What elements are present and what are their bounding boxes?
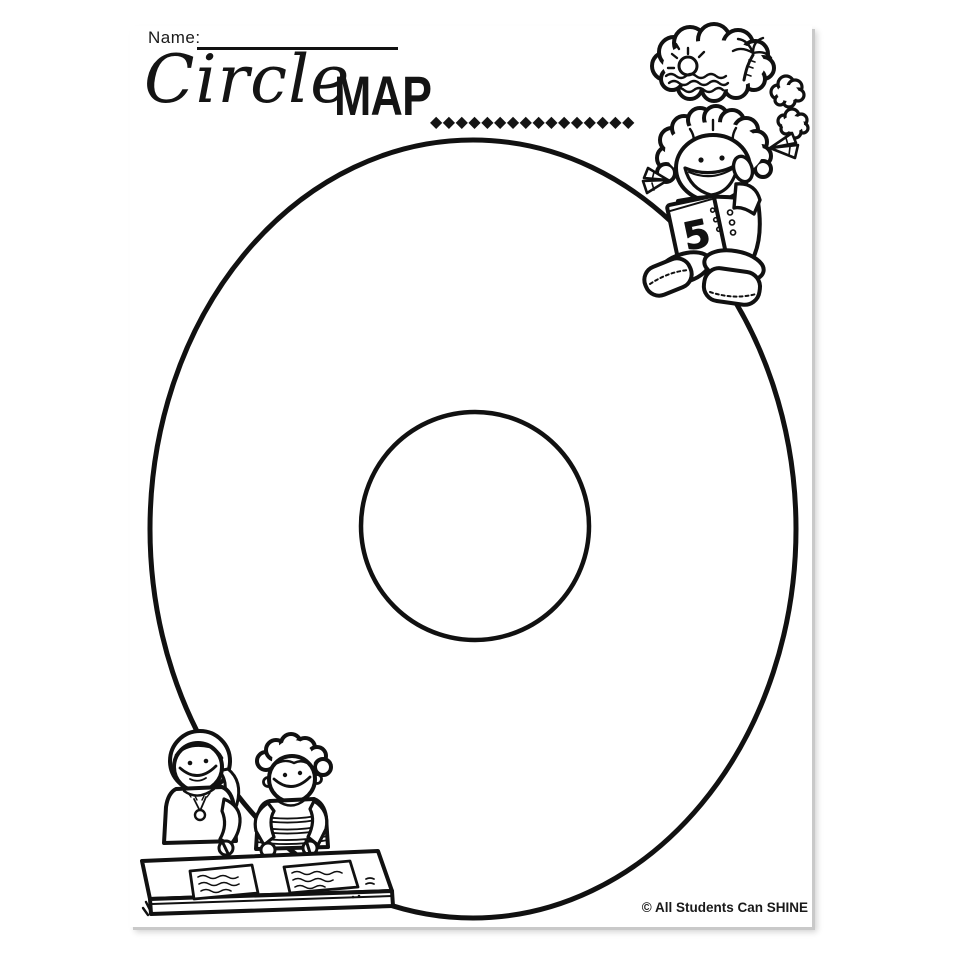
girl-eye-left xyxy=(698,157,703,162)
desk xyxy=(142,851,393,915)
girl-student xyxy=(164,731,240,871)
paper-boy xyxy=(284,861,358,893)
girl-figure: 5 xyxy=(640,106,798,307)
necklace-pendant xyxy=(195,810,205,820)
shoe-right xyxy=(702,266,762,306)
legs-and-shoes xyxy=(640,246,766,307)
paper-girl xyxy=(190,865,258,899)
shoe-left xyxy=(640,254,696,300)
kids-writing-clipart xyxy=(138,721,398,928)
inner-circle xyxy=(361,412,589,640)
worksheet-page: Name: Circle MAP ◆◆◆◆◆◆◆◆◆◆◆◆◆◆◆◆ xyxy=(130,26,812,927)
boy-student xyxy=(255,734,331,871)
thought-bubble-large xyxy=(771,76,804,107)
girl-eye-right xyxy=(719,155,724,160)
thinking-girl-clipart: 5 xyxy=(612,16,822,316)
copyright-text: © All Students Can SHINE xyxy=(642,900,808,915)
